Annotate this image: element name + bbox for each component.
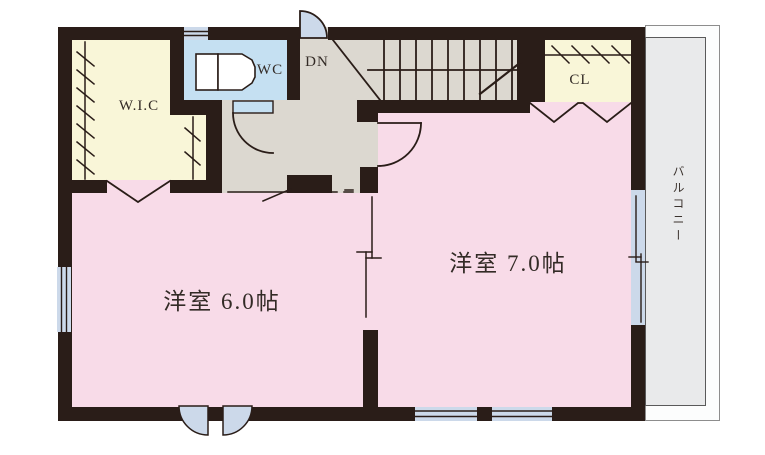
bedroom7-label: 洋室 7.0帖	[388, 244, 628, 278]
wall-partition-stub	[360, 167, 378, 193]
window-bedroom6-left	[57, 267, 71, 332]
wall-hall-stub	[287, 175, 332, 193]
bedroom6-label: 洋室 6.0帖	[92, 282, 352, 316]
cl-label: CL	[540, 72, 620, 89]
wic-door-gap	[107, 180, 170, 193]
dn-label: DN	[298, 54, 336, 71]
wc-label: WC	[250, 62, 290, 79]
wic-label: W.I.C	[72, 98, 206, 115]
window-bedroom7-balcony	[631, 190, 645, 325]
window-bedroom7-bottom-1	[415, 407, 477, 421]
staircase	[368, 40, 517, 100]
window-bedroom7-bottom-2	[492, 407, 552, 421]
wall-stair-stub	[357, 100, 378, 122]
balcony-label: バルコニー	[670, 165, 687, 245]
cl-opening	[530, 102, 631, 113]
wall-wic-wc	[170, 40, 184, 100]
floor-plan: W.I.C WC DN CL 洋室 6.0帖 洋室 7.0帖 バルコニー	[0, 0, 765, 455]
window-wc-top	[184, 27, 208, 40]
closet-cl	[545, 40, 631, 102]
partition-opening	[363, 193, 378, 330]
top-door-gap	[300, 27, 328, 40]
doorway-bedroom7	[368, 122, 378, 167]
